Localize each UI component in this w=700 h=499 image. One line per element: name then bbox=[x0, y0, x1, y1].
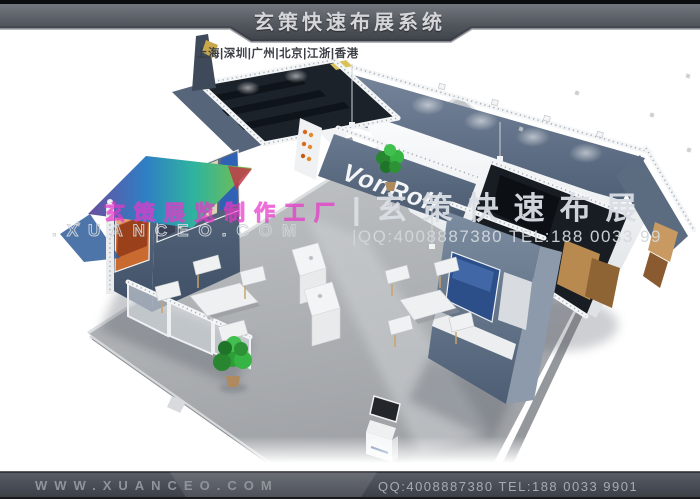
cities-line: 上海|深圳|广州|北京|江浙|香港 bbox=[196, 45, 359, 61]
footer-contact: QQ:4008887380 TEL:188 0033 9901 bbox=[378, 479, 638, 494]
booth-render-scene: VonRoll 绝缘 bbox=[0, 0, 700, 499]
page-title: 玄策快速布展系统 bbox=[0, 6, 700, 35]
footer-website: WWW.XUANCEO.COM bbox=[35, 478, 279, 493]
